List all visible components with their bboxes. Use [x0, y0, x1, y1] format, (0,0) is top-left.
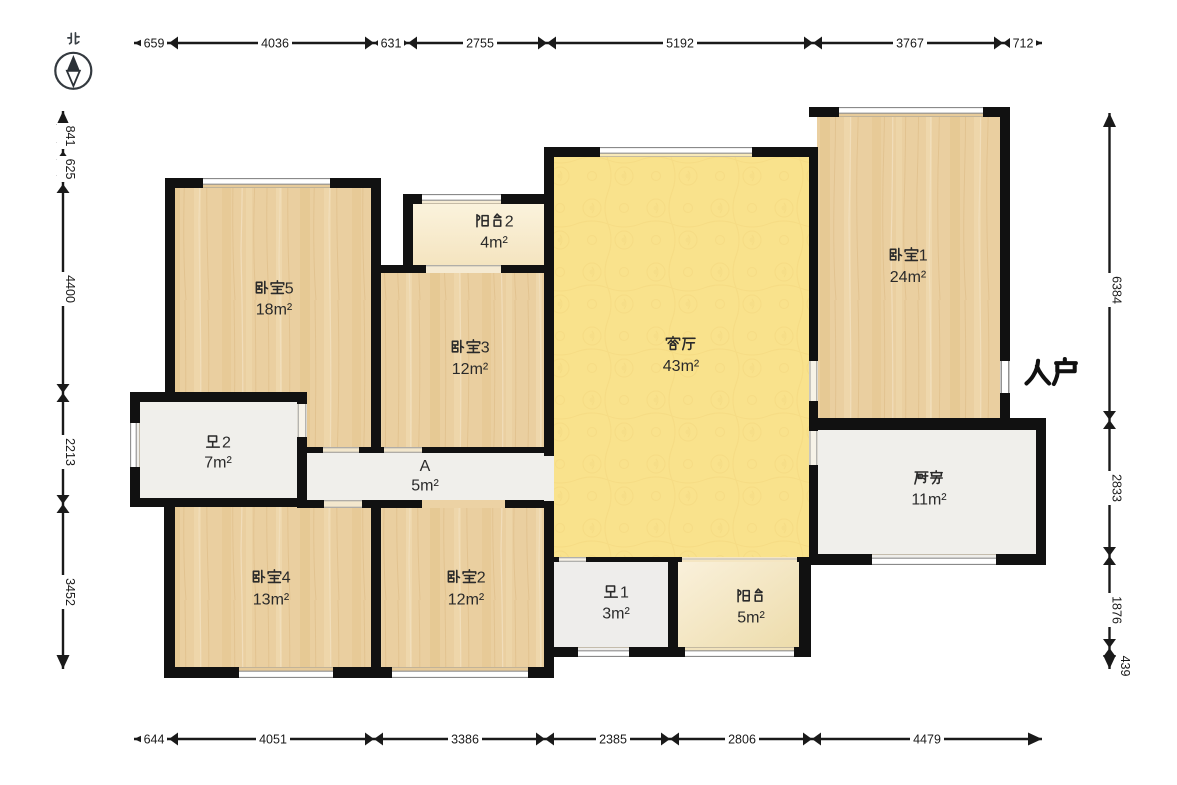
svg-text:625: 625 [63, 159, 77, 180]
svg-text:439: 439 [1118, 656, 1132, 677]
svg-text:4479: 4479 [913, 733, 941, 747]
svg-text:712: 712 [1013, 37, 1034, 51]
svg-text:4m²: 4m² [480, 235, 508, 252]
svg-text:11m²: 11m² [911, 492, 947, 509]
svg-text:3767: 3767 [896, 37, 924, 51]
svg-text:A: A [420, 458, 431, 475]
svg-text:5m²: 5m² [411, 478, 439, 495]
svg-text:659: 659 [144, 37, 165, 51]
svg-text:6384: 6384 [1110, 276, 1124, 304]
svg-text:5: 5 [285, 281, 294, 298]
svg-text:2: 2 [477, 570, 486, 587]
svg-text:1: 1 [620, 585, 629, 602]
svg-text:2385: 2385 [599, 733, 627, 747]
svg-text:4: 4 [282, 570, 291, 587]
svg-text:5m²: 5m² [737, 610, 765, 627]
svg-text:13m²: 13m² [253, 592, 290, 609]
svg-text:2213: 2213 [63, 438, 77, 466]
svg-text:644: 644 [144, 733, 165, 747]
svg-text:2806: 2806 [728, 733, 756, 747]
svg-text:3386: 3386 [451, 733, 479, 747]
svg-text:24m²: 24m² [890, 269, 927, 286]
svg-text:1876: 1876 [1110, 596, 1124, 624]
svg-text:4400: 4400 [63, 275, 77, 303]
svg-text:2755: 2755 [466, 37, 494, 51]
svg-text:7m²: 7m² [204, 455, 232, 472]
svg-text:1: 1 [919, 248, 928, 265]
svg-text:2: 2 [505, 214, 514, 231]
svg-text:5192: 5192 [666, 37, 694, 51]
svg-text:12m²: 12m² [452, 361, 489, 378]
svg-text:4036: 4036 [261, 37, 289, 51]
svg-text:3: 3 [481, 340, 490, 357]
svg-text:3m²: 3m² [602, 606, 630, 623]
svg-text:841: 841 [63, 126, 77, 147]
svg-text:631: 631 [381, 37, 402, 51]
svg-text:4051: 4051 [259, 733, 287, 747]
svg-text:18m²: 18m² [256, 302, 293, 319]
svg-text:43m²: 43m² [663, 358, 700, 375]
svg-text:2833: 2833 [1110, 474, 1124, 502]
svg-text:3452: 3452 [63, 578, 77, 606]
svg-text:2: 2 [222, 435, 231, 452]
svg-text:12m²: 12m² [448, 592, 485, 609]
